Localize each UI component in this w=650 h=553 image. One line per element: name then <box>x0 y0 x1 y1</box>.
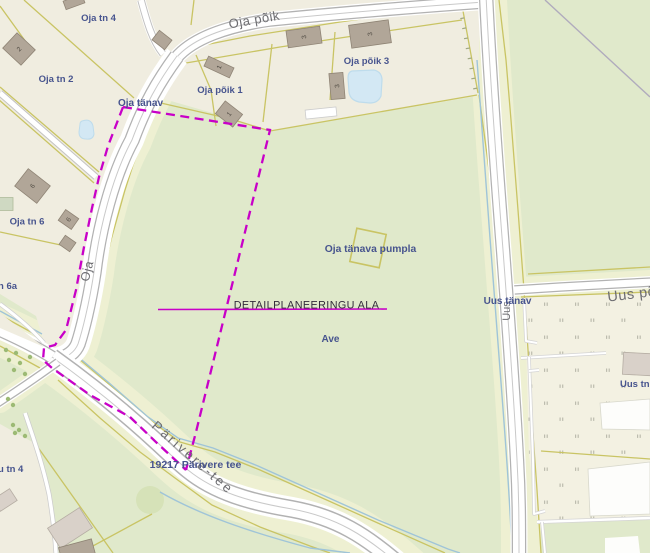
svg-text:Oja tänava pumpla: Oja tänava pumpla <box>325 244 417 255</box>
svg-text:Oja põik 1: Oja põik 1 <box>197 85 243 96</box>
svg-text:Oja tn 6: Oja tn 6 <box>10 217 45 228</box>
svg-text:DETAILPLANEERINGU ALA: DETAILPLANEERINGU ALA <box>234 300 380 312</box>
svg-text:Ave: Ave <box>322 334 340 345</box>
svg-text:Oja tänav: Oja tänav <box>118 98 163 109</box>
svg-text:Oja tn 4: Oja tn 4 <box>81 13 117 24</box>
svg-text:Oja tn 2: Oja tn 2 <box>39 74 74 85</box>
svg-text:19217 Pärivere tee: 19217 Pärivere tee <box>150 459 242 471</box>
svg-text:Uus tn 1: Uus tn 1 <box>620 379 650 390</box>
svg-text:Uus tänav: Uus tänav <box>484 296 532 307</box>
svg-text:u tn 4: u tn 4 <box>0 464 24 475</box>
svg-text:Oja põik 3: Oja põik 3 <box>344 56 389 67</box>
svg-text:n 6a: n 6a <box>0 281 18 292</box>
